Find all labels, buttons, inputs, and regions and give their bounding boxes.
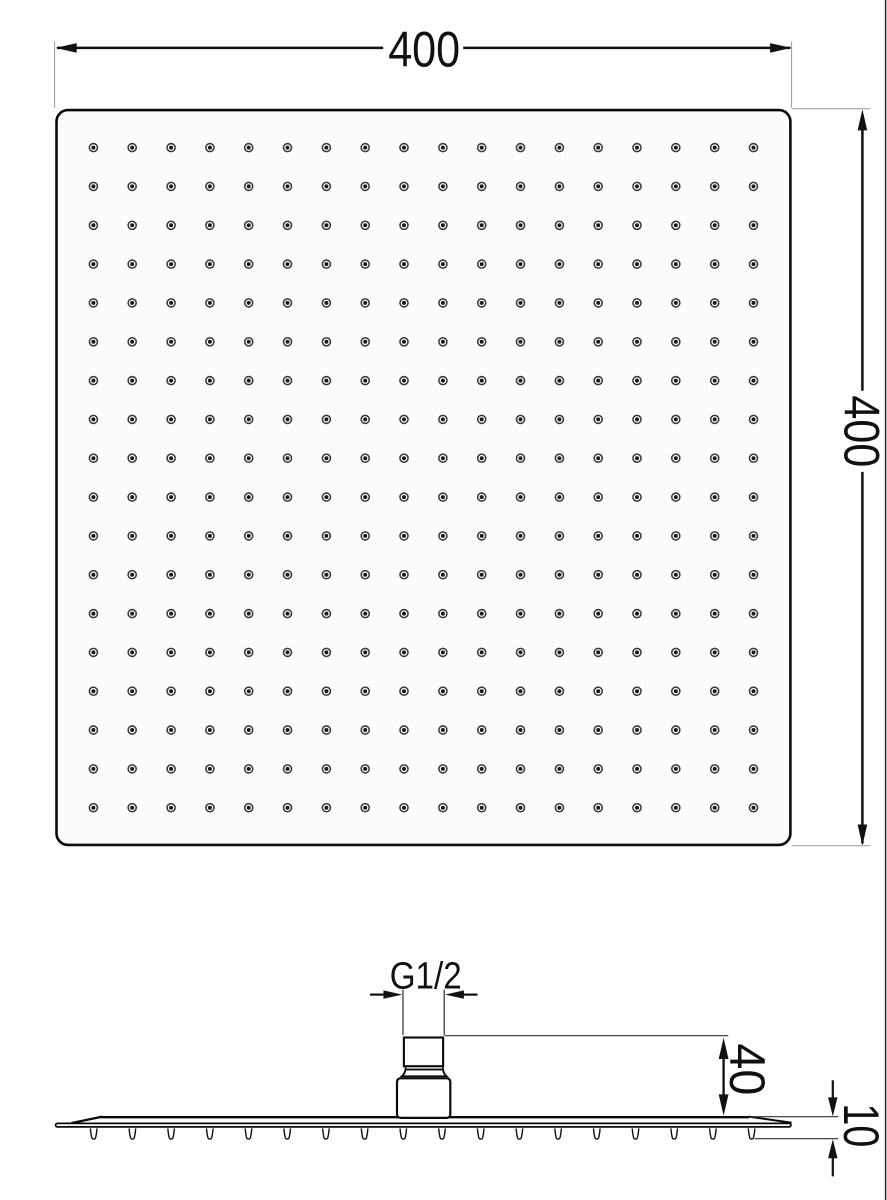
svg-text:G1/2: G1/2 (390, 955, 462, 997)
svg-text:40: 40 (719, 1043, 775, 1095)
svg-text:400: 400 (833, 395, 887, 467)
svg-text:400: 400 (388, 22, 460, 78)
svg-text:10: 10 (833, 1103, 887, 1147)
